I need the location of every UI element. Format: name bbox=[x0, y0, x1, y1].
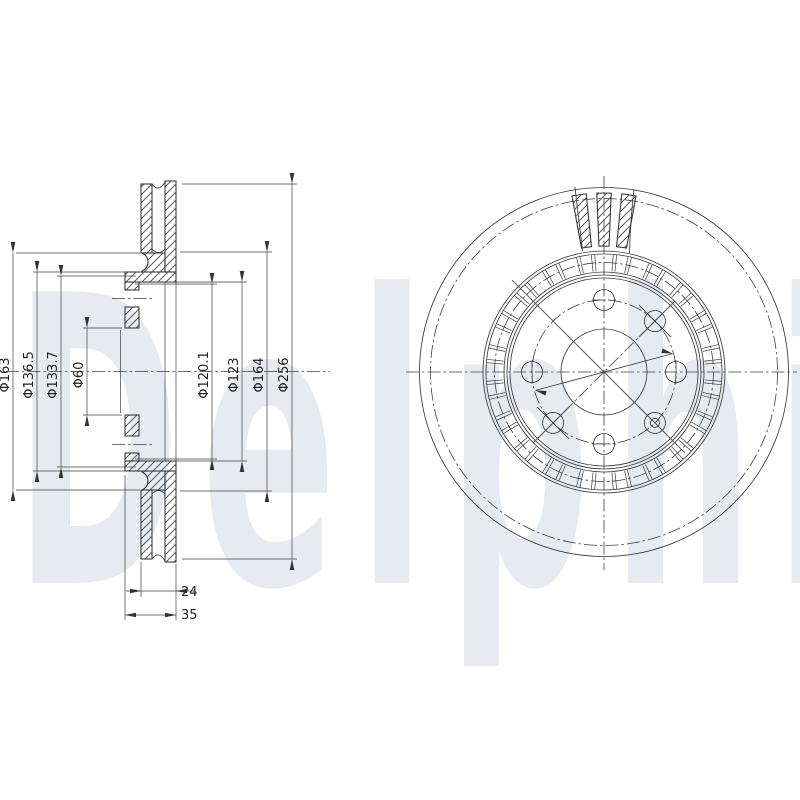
dimension-label: Φ136.5 bbox=[22, 351, 37, 398]
dimension-label: Φ256 bbox=[277, 357, 292, 392]
dimension-label: Φ164 bbox=[252, 357, 267, 392]
brake-disc-drawing: Delphi bbox=[0, 0, 800, 800]
dimension-label: 24 bbox=[181, 585, 198, 600]
dimension-label: 35 bbox=[181, 608, 198, 623]
dimension-label: Φ60 bbox=[72, 362, 87, 389]
dimension-label: Φ123 bbox=[227, 357, 242, 392]
technical-drawing-page: Delphi bbox=[0, 0, 800, 800]
dimension-label: Φ163 bbox=[0, 357, 13, 392]
dimension-label: Φ120.1 bbox=[197, 351, 212, 398]
dimension-label: Φ133.7 bbox=[46, 351, 61, 398]
